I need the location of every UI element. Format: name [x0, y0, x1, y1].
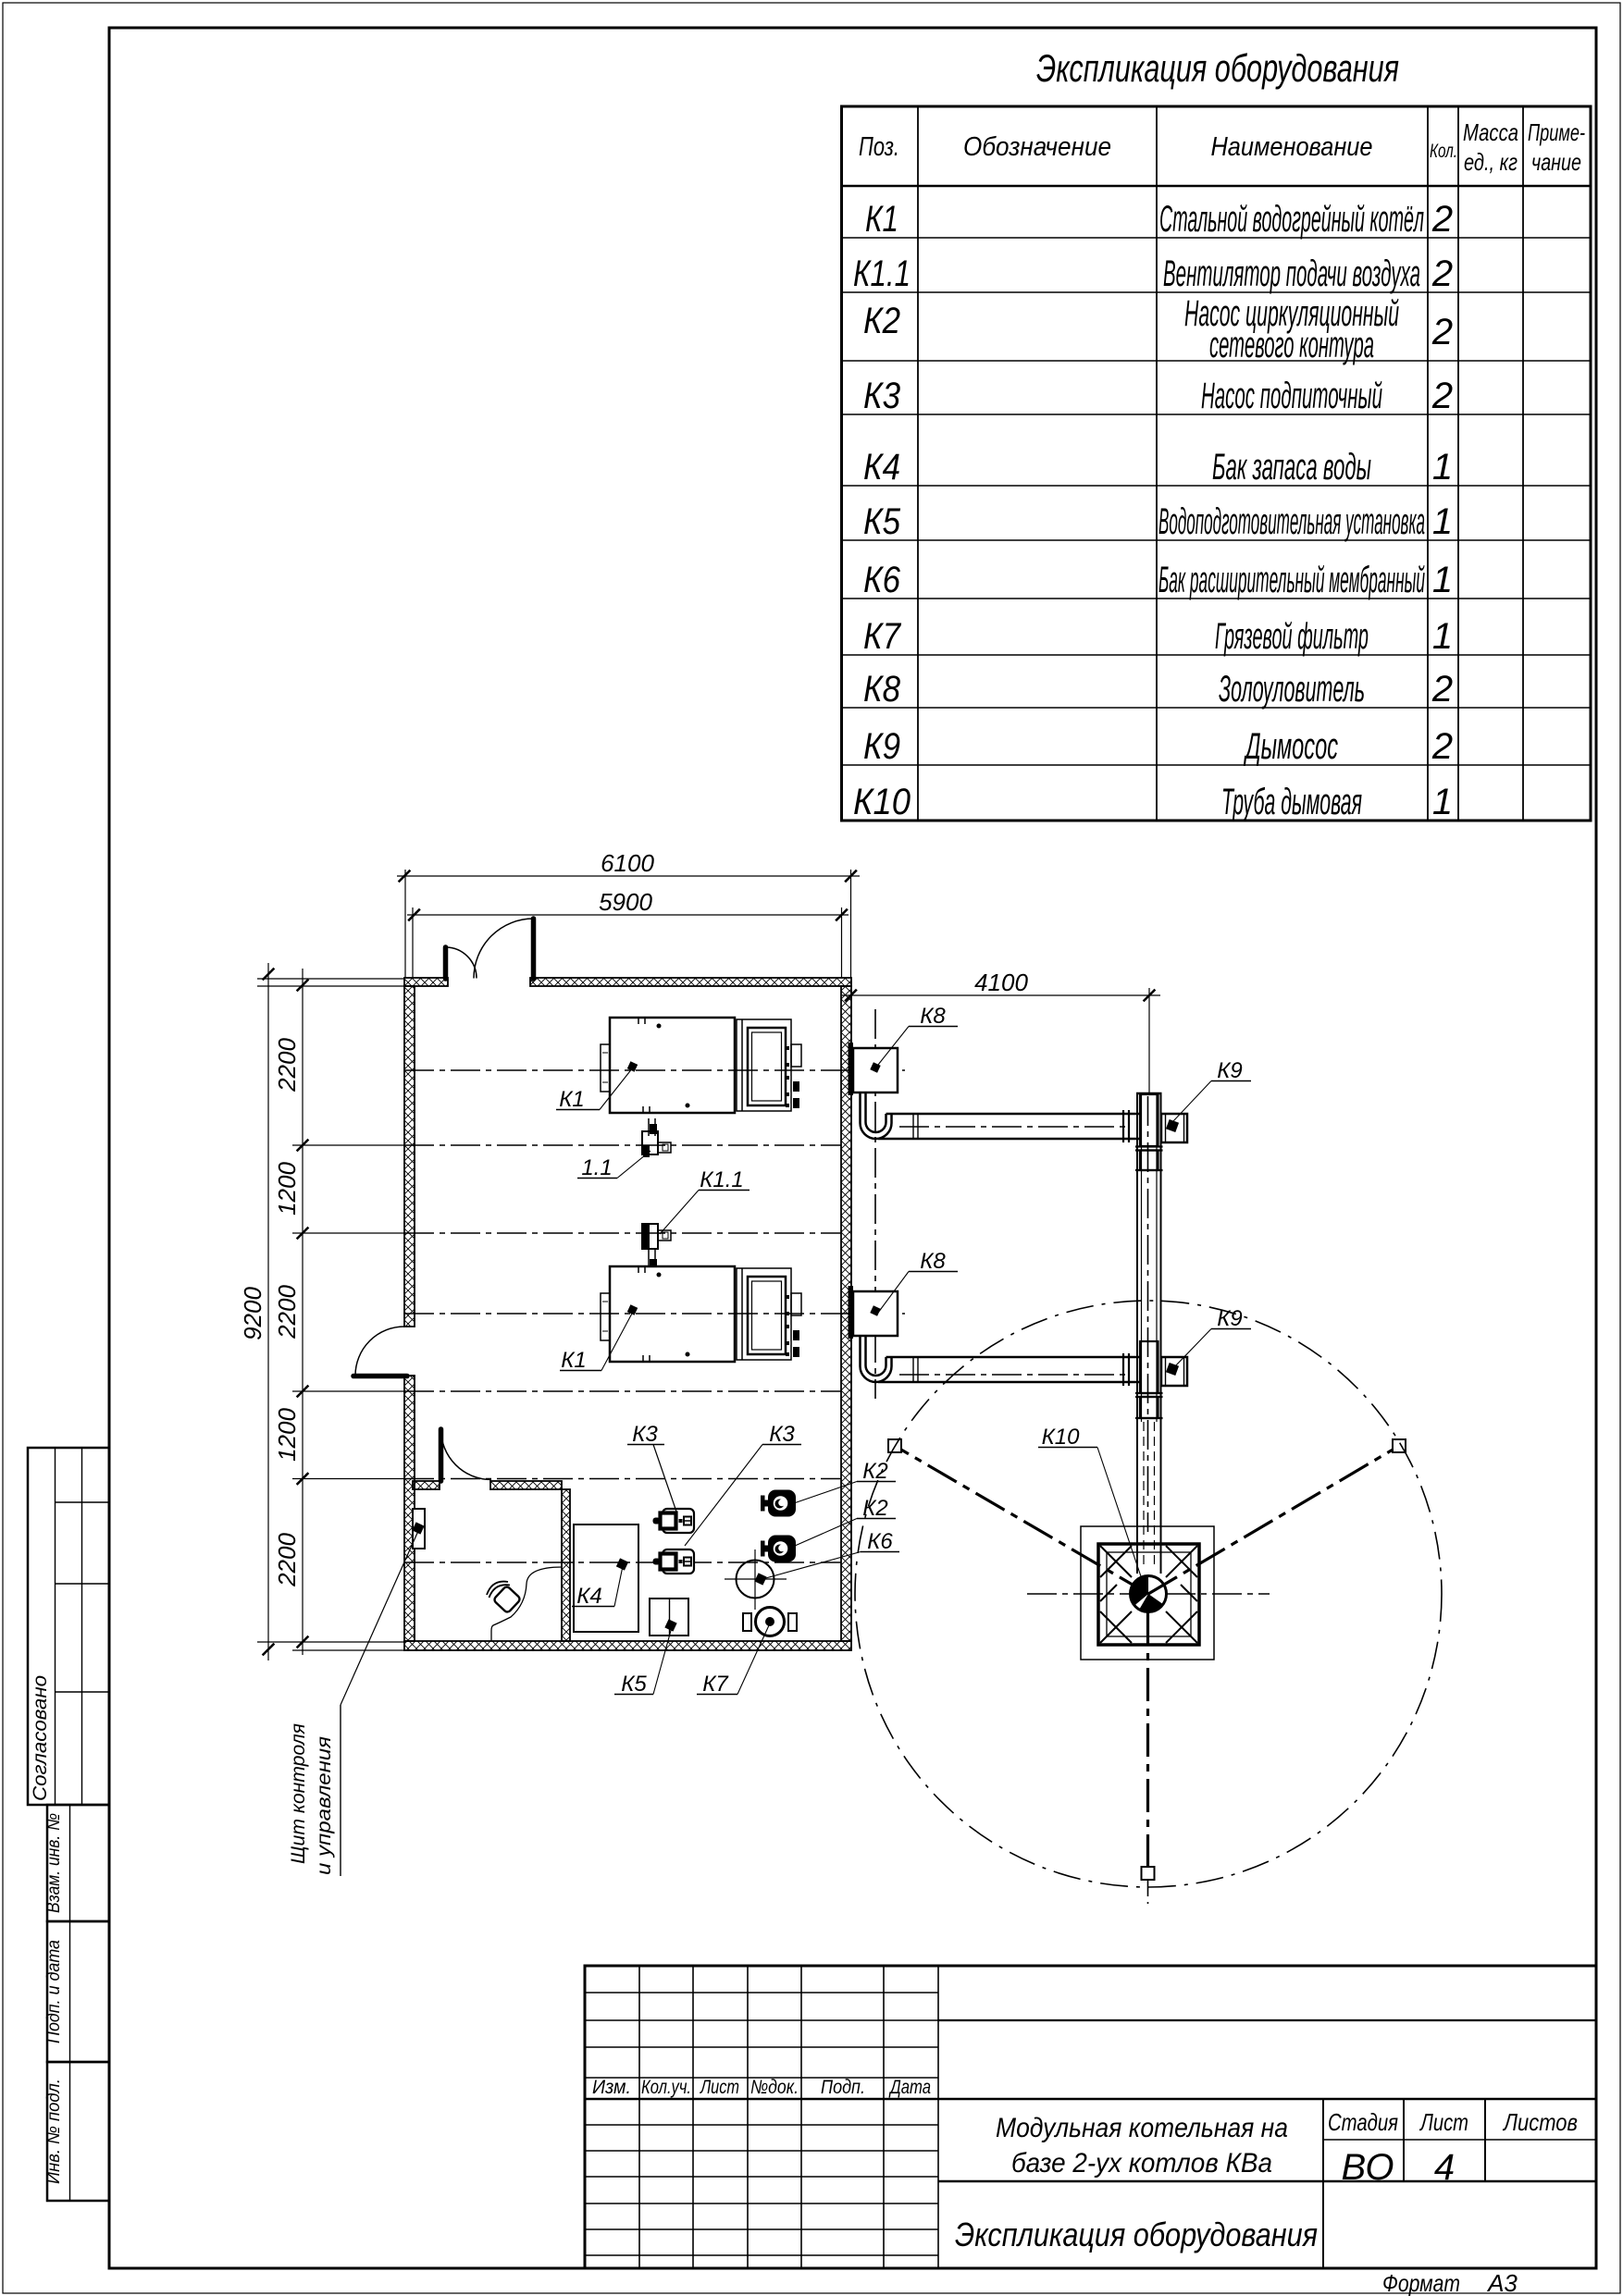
svg-text:К8: К8 — [920, 1249, 946, 1274]
svg-text:Стадия: Стадия — [1328, 2108, 1398, 2136]
svg-text:ВО: ВО — [1342, 2147, 1394, 2188]
svg-text:К10: К10 — [1042, 1425, 1080, 1450]
svg-text:А3: А3 — [1486, 2269, 1518, 2296]
svg-text:К6: К6 — [867, 1529, 893, 1554]
svg-text:Подп. и дата: Подп. и дата — [44, 1940, 64, 2043]
svg-text:К8: К8 — [863, 669, 901, 710]
svg-text:К5: К5 — [621, 1672, 647, 1697]
svg-text:К4: К4 — [576, 1584, 602, 1609]
svg-text:2: 2 — [1431, 376, 1453, 416]
svg-text:К3: К3 — [632, 1422, 658, 1447]
svg-text:К7: К7 — [863, 616, 902, 657]
svg-text:К9: К9 — [863, 726, 900, 767]
svg-text:Наименование: Наименование — [1211, 132, 1373, 162]
svg-text:К2: К2 — [862, 1496, 888, 1521]
svg-text:2: 2 — [1431, 669, 1453, 710]
svg-text:1: 1 — [1432, 616, 1453, 657]
svg-text:чание: чание — [1531, 148, 1581, 176]
svg-text:2: 2 — [1431, 253, 1453, 294]
svg-text:4: 4 — [1434, 2147, 1455, 2188]
svg-text:1: 1 — [1432, 782, 1453, 822]
svg-text:К7: К7 — [702, 1672, 729, 1697]
svg-text:Щит контроля: Щит контроля — [288, 1723, 309, 1864]
svg-text:К1: К1 — [559, 1087, 585, 1112]
svg-text:Инв. № подл.: Инв. № подл. — [44, 2079, 64, 2184]
svg-text:Кол.: Кол. — [1430, 141, 1457, 162]
svg-text:Обозначение: Обозначение — [963, 132, 1111, 162]
svg-text:К1.1: К1.1 — [853, 253, 911, 294]
svg-text:Вентилятор подачи воздуха: Вентилятор подачи воздуха — [1163, 253, 1420, 294]
svg-text:1200: 1200 — [273, 1408, 301, 1462]
svg-text:1: 1 — [1432, 501, 1453, 542]
svg-text:Золоуловитель: Золоуловитель — [1219, 669, 1365, 710]
svg-text:Поз.: Поз. — [859, 132, 899, 162]
svg-text:К3: К3 — [769, 1422, 795, 1447]
svg-text:К1.1: К1.1 — [700, 1167, 744, 1192]
svg-text:2200: 2200 — [273, 1533, 301, 1587]
svg-text:Экспликация оборудования: Экспликация оборудования — [955, 2216, 1318, 2253]
svg-text:Листов: Листов — [1502, 2108, 1578, 2136]
svg-text:сетевого контура: сетевого контура — [1209, 325, 1374, 365]
svg-text:Кол.уч.: Кол.уч. — [641, 2077, 691, 2098]
svg-text:К6: К6 — [863, 560, 901, 600]
svg-text:Формат: Формат — [1382, 2269, 1460, 2296]
svg-text:К9: К9 — [1217, 1306, 1243, 1331]
svg-text:2: 2 — [1431, 199, 1453, 240]
svg-text:9200: 9200 — [239, 1287, 266, 1340]
svg-text:К4: К4 — [863, 447, 900, 488]
svg-text:К2: К2 — [863, 301, 900, 341]
svg-text:Водоподготовительная установка: Водоподготовительная установка — [1158, 501, 1425, 542]
svg-text:Согласовано: Согласовано — [30, 1675, 51, 1801]
svg-text:К3: К3 — [863, 376, 900, 416]
svg-text:Стальной водогрейный котёл: Стальной водогрейный котёл — [1159, 199, 1424, 240]
svg-text:1200: 1200 — [273, 1162, 301, 1216]
svg-text:Модульная котельная на: Модульная котельная на — [996, 2113, 1288, 2143]
svg-text:Взам. инв. №: Взам. инв. № — [44, 1813, 64, 1913]
svg-text:1: 1 — [1432, 560, 1453, 600]
svg-text:Дата: Дата — [888, 2077, 931, 2098]
svg-text:Экспликация оборудования: Экспликация оборудования — [1036, 46, 1399, 90]
svg-text:К1: К1 — [561, 1348, 587, 1373]
svg-text:№док.: №док. — [750, 2077, 799, 2098]
svg-text:2200: 2200 — [273, 1038, 301, 1092]
svg-text:К5: К5 — [863, 501, 901, 542]
svg-text:ед., кг: ед., кг — [1464, 148, 1518, 176]
svg-text:1: 1 — [1432, 447, 1453, 488]
svg-text:Насос подпиточный: Насос подпиточный — [1201, 376, 1382, 416]
svg-text:К2: К2 — [862, 1459, 888, 1484]
svg-text:Масса: Масса — [1463, 118, 1518, 146]
svg-text:К9: К9 — [1217, 1058, 1243, 1083]
svg-text:5900: 5900 — [599, 888, 652, 916]
svg-text:1.1: 1.1 — [581, 1155, 612, 1180]
svg-text:Лист: Лист — [699, 2077, 739, 2098]
svg-text:Труба дымовая: Труба дымовая — [1221, 782, 1362, 822]
svg-text:6100: 6100 — [601, 849, 654, 877]
svg-text:Дымосос: Дымосос — [1244, 726, 1338, 767]
svg-text:К10: К10 — [853, 782, 911, 822]
svg-text:К1: К1 — [865, 199, 898, 240]
svg-text:Изм.: Изм. — [592, 2077, 631, 2098]
svg-text:Бак расширительный мембранный: Бак расширительный мембранный — [1158, 560, 1425, 600]
svg-text:2: 2 — [1431, 312, 1453, 352]
svg-text:2: 2 — [1431, 726, 1453, 767]
svg-text:Приме-: Приме- — [1528, 118, 1585, 146]
svg-text:4100: 4100 — [974, 969, 1028, 996]
svg-text:К8: К8 — [920, 1004, 946, 1029]
svg-text:Лист: Лист — [1419, 2108, 1468, 2136]
svg-text:Грязевой фильтр: Грязевой фильтр — [1215, 616, 1369, 657]
svg-text:2200: 2200 — [273, 1285, 301, 1339]
svg-text:Бак запаса воды: Бак запаса воды — [1212, 447, 1371, 488]
svg-text:базе 2-ух котлов КВа: базе 2-ух котлов КВа — [1011, 2148, 1272, 2179]
svg-text:и управления: и управления — [314, 1736, 335, 1875]
svg-text:Подп.: Подп. — [821, 2077, 865, 2098]
